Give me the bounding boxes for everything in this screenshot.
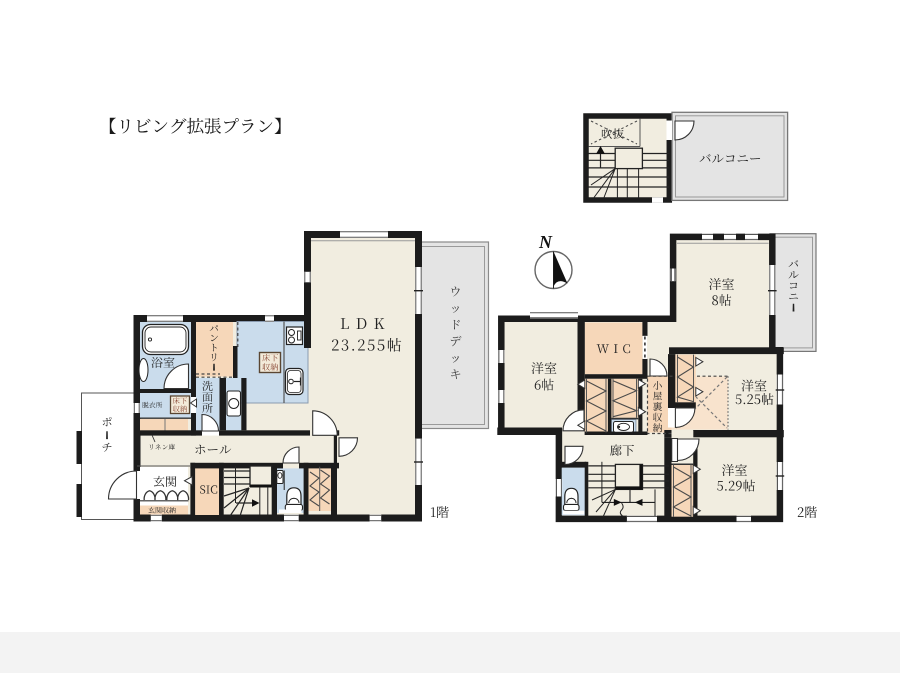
svg-text:N: N (538, 232, 553, 252)
